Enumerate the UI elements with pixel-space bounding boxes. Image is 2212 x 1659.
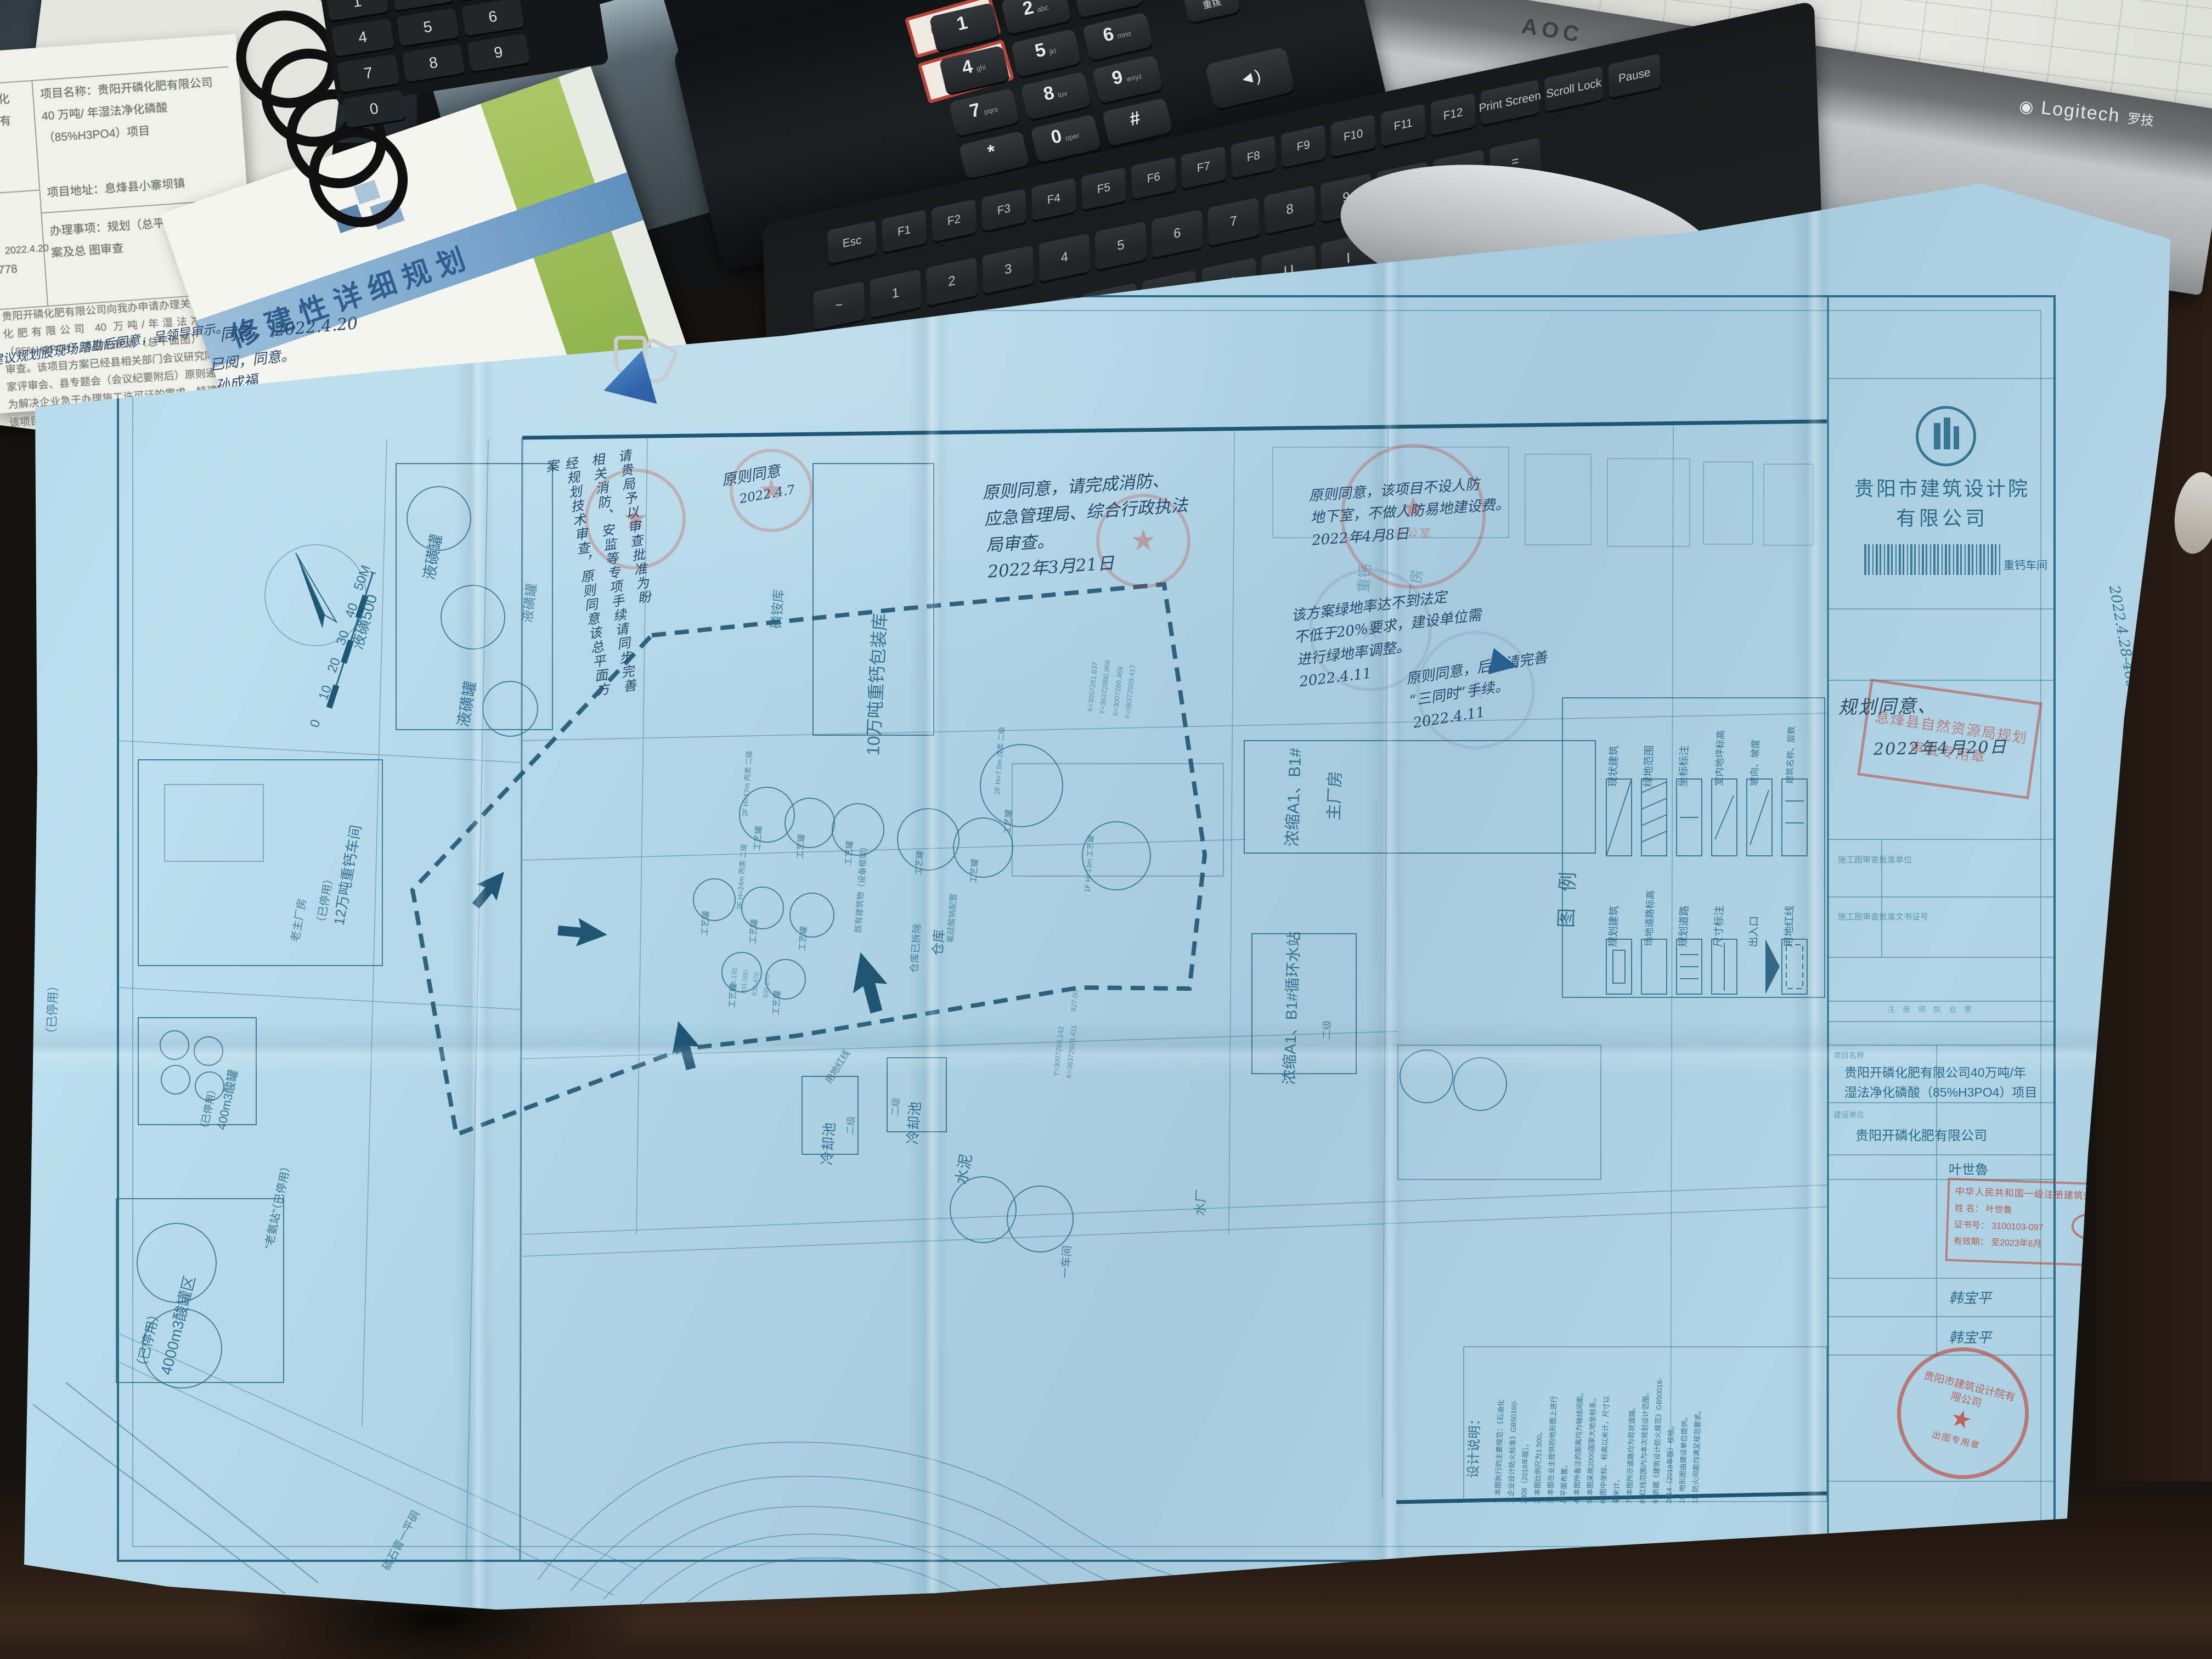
keyboard-key: Scroll Lock bbox=[1544, 66, 1604, 111]
legend-label: 尺寸标注 bbox=[1710, 905, 1726, 947]
form-row-project-name: 项目名称：贵阳开磷化肥有限公司 40 万吨/ 年湿法净化磷酸（85%H3PO4）… bbox=[39, 71, 230, 149]
plan-label: 工艺罐 bbox=[842, 840, 855, 866]
numpad-key: 5 bbox=[396, 8, 459, 46]
keyboard-key: F8 bbox=[1231, 136, 1276, 178]
phone-key: 7pqrs bbox=[949, 88, 1019, 137]
plan-label: 一车间 bbox=[1056, 1245, 1074, 1279]
keyboard-key: 3 bbox=[982, 245, 1034, 294]
keyboard-key: 4 bbox=[1039, 233, 1090, 282]
phone-key: 9wxyz bbox=[1092, 55, 1163, 104]
keyboard-key: F4 bbox=[1031, 178, 1076, 221]
plan-label: 冷却池 bbox=[901, 1101, 924, 1145]
plan-label: 工艺罐 bbox=[698, 911, 712, 936]
keyboard-key: F1 bbox=[882, 210, 927, 252]
keyboard-key: F10 bbox=[1331, 114, 1376, 157]
phone-key: 8tuv bbox=[1020, 71, 1091, 120]
legend-label: 出入口 bbox=[1745, 916, 1761, 947]
plan-label: 工艺罐 bbox=[794, 834, 807, 859]
handwriting-plan-agree: 规划同意、 bbox=[1838, 691, 1937, 719]
numpad-key: 9 bbox=[467, 33, 530, 72]
plan-label: 工艺罐 bbox=[747, 919, 760, 944]
company-name-line1: 贵阳市建筑设计院 bbox=[1832, 473, 2052, 501]
keyboard-key: Esc bbox=[827, 221, 877, 264]
keyboard-key: 7 bbox=[1207, 198, 1259, 246]
checker-name: 韩宝平 bbox=[1949, 1327, 1991, 1347]
numpad-key: 6 bbox=[461, 0, 524, 36]
keyboard-key: 8 bbox=[1264, 185, 1316, 234]
design-notes-header: 设计说明： bbox=[1462, 1412, 1483, 1479]
form-ref-no: 14778 bbox=[0, 258, 18, 283]
handwritten-annotation-fire: 原则同意，请完成消防、应急管理局、综合行政执法局审查。2022年3月21日 bbox=[981, 466, 1193, 585]
legend-label: 现状建筑 bbox=[1605, 745, 1621, 787]
registered-seal-row: 注册师执业章 bbox=[1887, 1004, 1979, 1015]
keyboard-key: F2 bbox=[932, 199, 977, 242]
plan-label: 工艺罐 bbox=[796, 926, 809, 951]
plan-label: 工艺罐 bbox=[1001, 809, 1014, 834]
legend-label: 规划道路 bbox=[1675, 905, 1691, 947]
phone-key: 5jkl bbox=[1011, 29, 1081, 77]
numpad-key: 1 bbox=[325, 0, 388, 21]
logitech-logo-icon: ◉ bbox=[2018, 97, 2035, 117]
review-unit-label: 施工图审查批准单位 bbox=[1838, 854, 1912, 865]
plan-label: 冷却池 bbox=[816, 1122, 839, 1166]
keyboard-key: F5 bbox=[1081, 167, 1126, 210]
keyboard-key: 1 bbox=[870, 269, 921, 318]
legend-header: 图 例 bbox=[1550, 866, 1581, 928]
keyboard-key: F9 bbox=[1281, 125, 1326, 168]
plan-label: 浓缩A1、B1# bbox=[1278, 747, 1306, 847]
owner-label: 建设单位 bbox=[1833, 1109, 1864, 1120]
owner-name: 贵阳开磷化肥有限公司 bbox=[1855, 1125, 1987, 1144]
plan-label: 磷铵库 bbox=[765, 589, 787, 629]
keyboard-key: F7 bbox=[1181, 146, 1226, 189]
fold-crease bbox=[1366, 165, 1407, 1618]
keyboard-key: F12 bbox=[1430, 93, 1475, 136]
keyboard-key: ~ bbox=[813, 281, 865, 330]
plan-label: 工艺罐 bbox=[770, 990, 783, 1015]
plan-label: 主厂房 bbox=[1320, 771, 1346, 821]
plan-label: （已停用） bbox=[42, 979, 61, 1040]
numpad-key: 4 bbox=[331, 18, 394, 57]
numpad-key: 8 bbox=[402, 43, 465, 82]
plan-label: 二级 bbox=[842, 1115, 857, 1135]
design-note-line: 2008（2018年版）。 bbox=[1518, 1440, 1531, 1504]
keyboard-key: F3 bbox=[981, 189, 1026, 232]
legend-label: 坐标标注 bbox=[1675, 745, 1691, 787]
legend-label: 规划建筑 bbox=[1605, 905, 1621, 947]
legend-label: 室内地坪标高 bbox=[1711, 730, 1727, 786]
review-doc-label: 施工图审查批准文书证号 bbox=[1838, 911, 1928, 922]
handwriting-plan-date: 2022年4月20日 bbox=[1874, 733, 2007, 760]
design-note-line: 总平面布置。 bbox=[1558, 1460, 1570, 1504]
plan-label: 水厂 bbox=[1189, 1189, 1210, 1216]
phone-speaker-key: ◄) bbox=[1205, 46, 1295, 110]
phone-key: 6mno bbox=[1082, 12, 1153, 61]
phone-key: 4ghi bbox=[939, 45, 1009, 94]
monitor-brand-logo: AOC bbox=[1520, 14, 1585, 48]
architect-name: 叶世魯 bbox=[1949, 1159, 1988, 1178]
legend-label: 坡向、坡度 bbox=[1746, 739, 1762, 786]
desk-scene: ▤▥▦▧ 65% AOC ◉ Logitech 罗技 磷 化 肥 有 14778… bbox=[0, 0, 2212, 1659]
legend-label: 建筑名称、层数 bbox=[1784, 726, 1797, 784]
fold-crease bbox=[909, 165, 949, 1618]
company-name-line2: 有限公司 bbox=[1832, 503, 2052, 531]
plan-label: 二级 bbox=[887, 1097, 902, 1116]
keyboard-key: 6 bbox=[1152, 210, 1203, 258]
plan-label: 工艺罐 bbox=[912, 850, 926, 876]
reviewer-name: 韩宝平 bbox=[1949, 1287, 1991, 1307]
form-printed-date: 2022.4.20 bbox=[4, 239, 49, 261]
project-name-label: 项目名称 bbox=[1833, 1050, 1864, 1061]
project-name-line1: 贵阳开磷化肥有限公司40万吨/年 bbox=[1844, 1062, 2026, 1081]
keyboard-key: 5 bbox=[1095, 221, 1147, 270]
keyboard-key: Print Screen bbox=[1480, 80, 1539, 125]
legend-label: 绿地范围 bbox=[1640, 745, 1656, 787]
drawing-barcode bbox=[1864, 544, 2000, 575]
registered-architect-stamp: 中华人民共和国一级注册建筑师 姓 名： 叶世魯 证书号： 3100103-097… bbox=[1945, 1178, 2115, 1267]
keyboard-key: 2 bbox=[926, 257, 978, 306]
form-side-label: 磷 化 肥 有 bbox=[0, 87, 32, 134]
legend-label: 用地红线 bbox=[1780, 905, 1797, 947]
design-institute-logo bbox=[1916, 406, 1976, 466]
phone-key: 2abc bbox=[1001, 0, 1071, 35]
project-name-line2: 湿法净化磷酸（85%H3PO4）项目 bbox=[1844, 1082, 2037, 1101]
keyboard-key: F6 bbox=[1131, 157, 1176, 200]
legend-label: 场地道路标高 bbox=[1641, 890, 1657, 946]
numpad-key: 7 bbox=[337, 54, 400, 92]
plan-label: 工艺罐 bbox=[967, 859, 980, 884]
fold-crease bbox=[454, 165, 495, 1618]
plan-label: 二级 bbox=[1319, 1020, 1334, 1040]
keyboard-key: F11 bbox=[1380, 104, 1425, 146]
fold-crease bbox=[1791, 165, 1831, 1618]
handwritten-annotation-civildefense: 原则同意，该项目不设人防地下室，不做人防易地建设费。2022年4月8日 bbox=[1308, 471, 1512, 551]
phone-function-key: 重拨 bbox=[1183, 0, 1241, 23]
plan-label: 工艺罐 bbox=[751, 826, 764, 851]
barcode-side-note: 重钙车间 bbox=[2004, 556, 2047, 572]
keyboard-key: Pause bbox=[1608, 54, 1661, 98]
design-note-line: 毫米计。 bbox=[1610, 1475, 1622, 1504]
